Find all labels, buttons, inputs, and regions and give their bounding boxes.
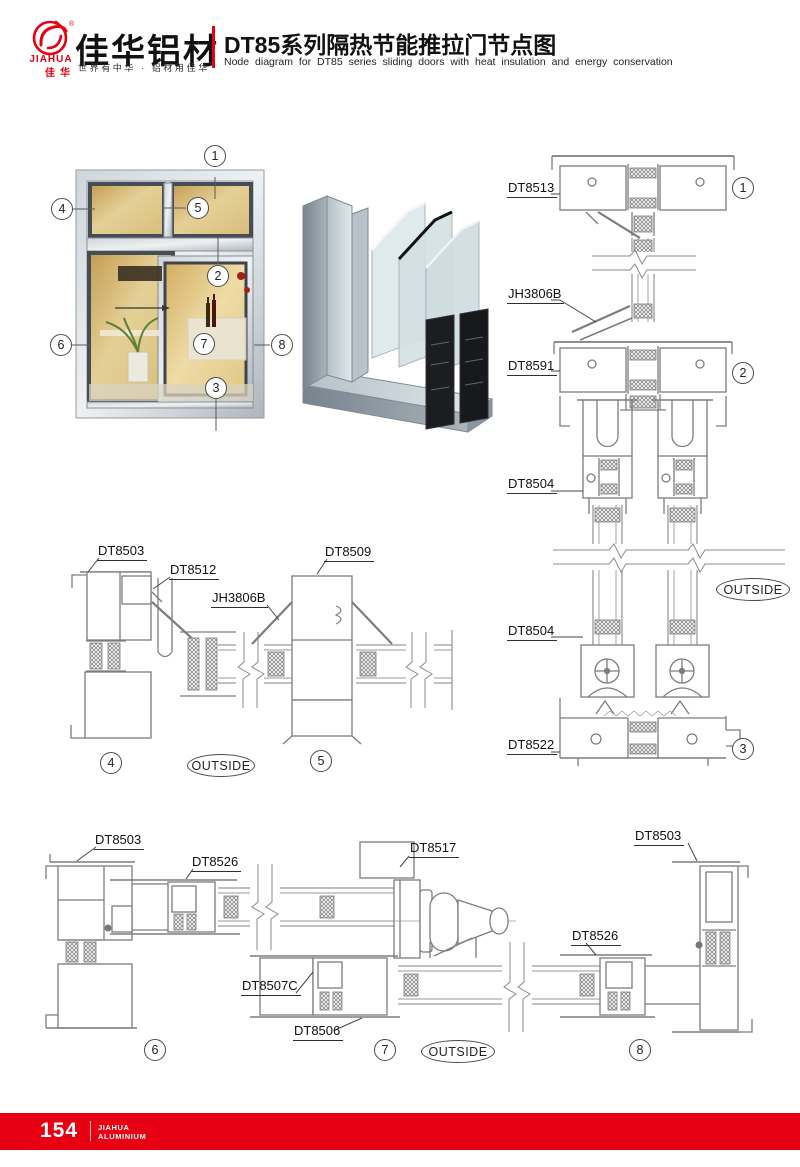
footer-brand: JIAHUA ALUMINIUM bbox=[98, 1123, 146, 1142]
callout-8: 8 bbox=[271, 334, 293, 356]
part-label-dt8509: DT8509 bbox=[324, 545, 374, 562]
part-label-jh3806b-v: JH3806B bbox=[507, 287, 564, 304]
part-label-dt8504-lower: DT8504 bbox=[507, 624, 557, 641]
catalog-page: ® JIAHUA 佳华 佳华铝材 世界有中华 · 铝材用佳华 DT85系列隔热节… bbox=[0, 0, 800, 1167]
callout-3: 3 bbox=[205, 377, 227, 399]
profile-3d-illustration bbox=[303, 196, 492, 432]
section-marker-1: 1 bbox=[732, 177, 754, 199]
part-label-dt8526-right: DT8526 bbox=[571, 929, 621, 946]
outside-label-plan-top: OUTSIDE bbox=[187, 754, 255, 777]
section-marker-5: 5 bbox=[310, 750, 332, 772]
vertical-section-drawing bbox=[551, 156, 785, 766]
footer-divider bbox=[90, 1121, 91, 1141]
part-label-dt8504-upper: DT8504 bbox=[507, 477, 557, 494]
plan-bottom-drawing bbox=[46, 842, 752, 1032]
header-divider bbox=[212, 26, 215, 68]
company-tagline: 世界有中华 · 铝材用佳华 bbox=[78, 61, 210, 74]
part-label-dt8503-top: DT8503 bbox=[97, 544, 147, 561]
part-label-dt8507c: DT8507C bbox=[241, 979, 301, 996]
footer-brand-line2: ALUMINIUM bbox=[98, 1132, 146, 1141]
page-subtitle: Node diagram for DT85 series sliding doo… bbox=[224, 56, 673, 68]
section-marker-8: 8 bbox=[629, 1039, 651, 1061]
section-marker-6: 6 bbox=[144, 1039, 166, 1061]
part-label-dt8513: DT8513 bbox=[507, 181, 557, 198]
logo-brand-cn: 佳华 bbox=[40, 64, 80, 79]
plan-top-drawing bbox=[71, 558, 452, 744]
part-label-dt8506: DT8506 bbox=[293, 1024, 343, 1041]
section-marker-7: 7 bbox=[374, 1039, 396, 1061]
outside-label-vertical: OUTSIDE bbox=[716, 578, 790, 601]
callout-5: 5 bbox=[187, 197, 209, 219]
part-label-dt8512: DT8512 bbox=[169, 563, 219, 580]
part-label-dt8522: DT8522 bbox=[507, 738, 557, 755]
page-title: DT85系列隔热节能推拉门节点图 bbox=[224, 26, 556, 60]
part-label-dt8591: DT8591 bbox=[507, 359, 557, 376]
jiahua-logo-emblem: ® bbox=[28, 17, 78, 57]
callout-7: 7 bbox=[193, 333, 215, 355]
part-label-dt8526-left: DT8526 bbox=[191, 855, 241, 872]
part-label-dt8503-br: DT8503 bbox=[634, 829, 684, 846]
footer-brand-line1: JIAHUA bbox=[98, 1123, 146, 1132]
section-marker-4: 4 bbox=[100, 752, 122, 774]
page-number: 154 bbox=[40, 1119, 78, 1143]
outside-label-plan-bottom: OUTSIDE bbox=[421, 1040, 495, 1063]
callout-6: 6 bbox=[50, 334, 72, 356]
diagram-artwork bbox=[0, 0, 800, 1167]
part-label-dt8503-bl: DT8503 bbox=[94, 833, 144, 850]
window-photo-illustration bbox=[72, 170, 270, 431]
callout-1: 1 bbox=[204, 145, 226, 167]
section-marker-3: 3 bbox=[732, 738, 754, 760]
callout-2: 2 bbox=[207, 265, 229, 287]
callout-4: 4 bbox=[51, 198, 73, 220]
part-label-dt8517: DT8517 bbox=[409, 841, 459, 858]
section-marker-2: 2 bbox=[732, 362, 754, 384]
part-label-jh3806b-h: JH3806B bbox=[211, 591, 268, 608]
